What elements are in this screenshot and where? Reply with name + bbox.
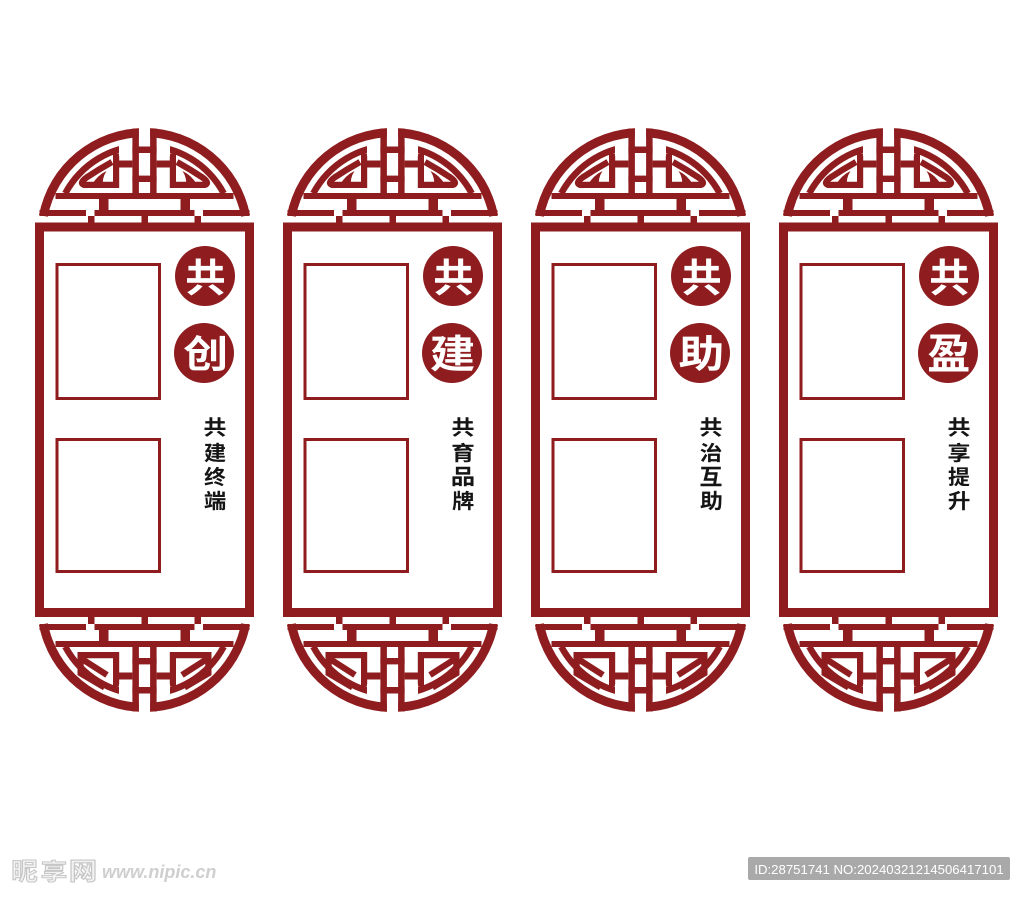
svg-text:www.nipic.cn: www.nipic.cn bbox=[102, 862, 216, 882]
svg-text:ID:28751741 NO:202403212145064: ID:28751741 NO:20240321214506417101 bbox=[754, 862, 1003, 877]
